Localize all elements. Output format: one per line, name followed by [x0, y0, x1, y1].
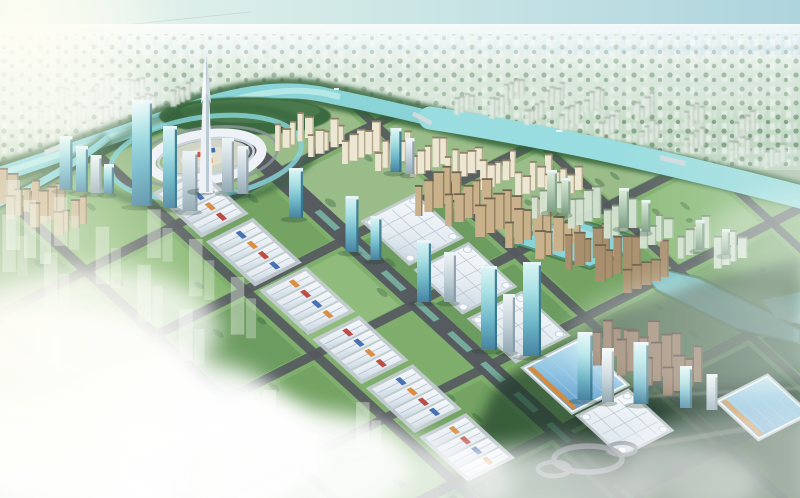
apartment-slab-side: [372, 132, 373, 154]
apartment-slab-side: [323, 131, 324, 154]
tower-roof-cap: [406, 138, 415, 140]
apartment-roof: [555, 88, 562, 90]
apartment-roof: [612, 204, 620, 206]
apartment-slab-side: [475, 152, 476, 174]
apartment-slab-side: [579, 103, 580, 124]
apartment-roof: [595, 244, 606, 246]
tower-shaded-side: [301, 172, 303, 219]
apartment-roof: [584, 100, 590, 102]
apartment-roof: [297, 112, 304, 114]
apartment-roof: [739, 117, 746, 119]
apartment-slab-side: [295, 123, 296, 145]
apartment-slab-side: [548, 91, 549, 106]
masterplan-illustration: Bird's-eye architectural rendering of a …: [0, 0, 800, 498]
apartment-roof: [290, 121, 297, 123]
apartment-slab-side: [466, 154, 467, 177]
apartment-slab-side: [498, 100, 499, 117]
apartment-roof: [564, 107, 569, 109]
apartment-slab-side: [337, 119, 338, 147]
apartment-slab-side: [535, 163, 536, 191]
apartment-roof: [405, 130, 412, 132]
apartment-roof: [745, 115, 752, 117]
apartment-roof: [505, 222, 514, 224]
tower-roof-cap: [547, 170, 557, 172]
tower-shaded-side: [539, 266, 541, 357]
apartment-roof: [750, 110, 756, 112]
apartment-roof: [415, 185, 423, 187]
apartment-slab-side: [603, 91, 604, 106]
apartment-roof: [504, 84, 509, 86]
apartment-slab-side: [439, 138, 440, 167]
apartment-slab-side: [551, 233, 552, 255]
tower-shaded-side: [495, 270, 497, 351]
office-tower: [481, 268, 497, 350]
apartment-roof: [639, 131, 645, 133]
apartment-roof: [475, 205, 487, 207]
apartment-slab-side: [485, 206, 486, 237]
tower-roof-cap: [444, 252, 456, 254]
apartment-roof: [417, 150, 425, 152]
apartment-roof: [460, 152, 468, 154]
apartment-roof: [549, 86, 555, 88]
apartment-slab-side: [563, 218, 564, 251]
apartment-roof: [689, 104, 694, 106]
apartment-roof: [544, 90, 550, 92]
apartment-slab-side: [523, 210, 524, 244]
apartment-slab-side: [530, 177, 531, 194]
apartment-roof: [567, 174, 575, 176]
apartment-slab-side: [593, 93, 594, 111]
apartment-roof: [740, 136, 747, 138]
apartment-slab-side: [443, 173, 444, 208]
apartment-roof: [489, 97, 496, 99]
apartment-slab-side: [754, 112, 755, 130]
apartment-slab-side: [494, 199, 495, 233]
apartment-slab-side: [290, 130, 291, 148]
apartment-roof: [470, 95, 475, 97]
apartment-slab-side: [509, 161, 510, 180]
tower-shaded-side: [555, 174, 557, 213]
apartment-roof: [604, 209, 613, 211]
office-tower: [523, 264, 541, 356]
apartment-roof: [445, 194, 453, 196]
apartment-roof: [473, 180, 481, 182]
apartment-roof: [769, 148, 774, 150]
apartment-slab-side: [432, 181, 433, 212]
tower-shaded-side: [454, 256, 456, 303]
apartment-slab-side: [531, 211, 532, 240]
apartment-roof: [509, 82, 514, 84]
apartment-roof: [452, 171, 462, 173]
apartment-slab-side: [703, 129, 704, 146]
apartment-slab-side: [380, 122, 381, 151]
apartment-roof: [655, 122, 660, 124]
apartment-roof: [729, 141, 735, 143]
apartment-roof: [432, 137, 440, 139]
apartment-slab-side: [582, 167, 583, 190]
apartment-roof: [530, 161, 537, 163]
apartment-slab-side: [653, 94, 654, 114]
apartment-roof: [342, 140, 350, 142]
apartment-roof: [424, 179, 434, 181]
apartment-roof: [308, 134, 315, 136]
apartment-slab-side: [348, 142, 349, 164]
tower-roof-cap: [346, 196, 359, 198]
tower-shaded-side: [246, 150, 248, 195]
apartment-roof: [440, 137, 448, 139]
apartment-slab-side: [650, 98, 651, 116]
apartment-slab-side: [175, 91, 176, 106]
apartment-slab-side: [512, 223, 513, 248]
apartment-slab-side: [364, 131, 365, 158]
apartment-roof: [780, 143, 787, 145]
apartment-roof: [522, 175, 531, 177]
apartment-roof: [484, 198, 496, 200]
apartment-slab-side: [523, 81, 524, 95]
apartment-roof: [689, 132, 694, 134]
apartment-slab-side: [495, 165, 496, 187]
apartment-roof: [454, 97, 460, 99]
apartment-roof: [480, 159, 488, 161]
apartment-slab-side: [507, 86, 508, 102]
apartment-slab-side: [313, 136, 314, 157]
apartment-slab: [595, 246, 606, 282]
apartment-slab-side: [643, 132, 644, 144]
apartment-slab-side: [584, 234, 585, 266]
tower-shaded-side: [232, 142, 234, 193]
apartment-slab-side: [421, 187, 422, 216]
apartment-roof: [503, 189, 512, 191]
apartment-roof: [514, 208, 524, 210]
apartment-roof: [475, 147, 484, 149]
apartment-slab-side: [494, 99, 495, 119]
apartment-slab-side: [588, 101, 589, 112]
apartment-roof: [700, 127, 705, 129]
tower-roof-cap: [481, 266, 497, 268]
apartment-roof: [684, 138, 689, 140]
apartment-roof: [584, 189, 594, 191]
apartment-roof: [372, 120, 382, 122]
apartment-slab-side: [619, 112, 620, 130]
apartment-slab: [464, 187, 474, 218]
apartment-roof: [545, 153, 553, 155]
apartment-slab-side: [688, 113, 689, 129]
apartment-slab-side: [574, 107, 575, 126]
apartment-roof: [589, 91, 595, 93]
apartment-roof: [315, 129, 325, 131]
apartment-slab-side: [472, 187, 473, 218]
apartment-slab-side: [554, 88, 555, 104]
tower-roof-cap: [417, 240, 431, 242]
apartment-roof: [495, 161, 502, 163]
apartment-roof: [593, 227, 604, 229]
apartment-roof: [592, 186, 602, 188]
apartment-roof: [500, 95, 506, 97]
apartment-slab-side: [603, 124, 604, 137]
apartment-roof: [524, 109, 531, 111]
tower-shaded-side: [356, 200, 358, 253]
apartment-slab-side: [458, 99, 459, 115]
apartment-roof: [532, 196, 539, 198]
apartment-slab-side: [381, 154, 382, 171]
apartment-slab-side: [592, 191, 593, 222]
apartment-slab-side: [463, 98, 464, 113]
tower-shaded-side: [568, 182, 570, 215]
apartment-roof: [443, 166, 452, 168]
apartment-slab-side: [503, 194, 504, 229]
apartment-roof: [515, 79, 521, 81]
apartment-roof: [433, 171, 444, 173]
apartment-roof: [520, 79, 525, 81]
apartment-roof: [502, 159, 511, 161]
tower-shaded-side: [399, 132, 401, 173]
apartment-slab-side: [510, 191, 511, 225]
apartment-roof: [595, 87, 602, 89]
apartment-slab-side: [184, 89, 185, 102]
apartment-slab-side: [590, 240, 591, 262]
apartment-roof: [576, 198, 585, 200]
ghost-building: [246, 298, 256, 338]
apartment-roof: [734, 122, 739, 124]
apartment-slab-side: [560, 89, 561, 102]
apartment-slab: [475, 206, 486, 237]
apartment-slab-side: [698, 132, 699, 149]
tower-roof-cap: [523, 262, 541, 264]
apartment-roof: [382, 140, 389, 142]
apartment-slab-side: [583, 199, 584, 225]
apartment-roof: [560, 82, 565, 84]
apartment-slab-side: [605, 246, 606, 282]
apartment-slab-side: [575, 200, 576, 229]
apartment-slab-side: [537, 197, 538, 218]
apartment-slab-side: [612, 251, 613, 278]
apartment-roof: [357, 129, 366, 131]
apartment-roof: [482, 178, 493, 180]
apartment-roof: [515, 172, 523, 174]
apartment-slab: [574, 234, 585, 266]
tower-roof-cap: [391, 128, 402, 130]
apartment-slab: [554, 218, 565, 251]
apartment-slab-side: [600, 187, 601, 218]
apartment-roof: [175, 86, 180, 88]
tower-shaded-side: [412, 142, 414, 175]
apartment-roof: [574, 232, 586, 234]
apartment-slab-side: [698, 104, 699, 124]
apartment-roof: [695, 130, 700, 132]
apartment-roof: [695, 103, 700, 105]
apartment-roof: [375, 152, 383, 154]
apartment-slab-side: [538, 105, 539, 120]
apartment-roof: [452, 149, 459, 151]
apartment-slab-side: [568, 109, 569, 129]
apartment-slab-side: [610, 210, 611, 238]
tower-roof-cap: [371, 216, 382, 218]
apartment-slab-side: [424, 151, 425, 173]
apartment-roof: [575, 166, 584, 168]
apartment-roof: [645, 96, 652, 98]
apartment-slab-side: [468, 95, 469, 110]
apartment-slab-side: [328, 132, 329, 150]
tower-roof-cap: [289, 168, 303, 170]
apartment-roof: [510, 150, 517, 152]
apartment-roof: [734, 141, 739, 143]
apartment-slab-side: [563, 116, 564, 131]
apartment-slab-side: [464, 195, 465, 222]
apartment-roof: [537, 166, 546, 168]
apartment-slab-side: [357, 135, 358, 161]
apartment-slab-side: [302, 114, 303, 141]
apartment-slab: [535, 232, 546, 259]
apartment-slab-side: [693, 106, 694, 126]
apartment-slab-side: [574, 175, 575, 193]
tower-shaded-side: [379, 220, 381, 261]
apartment-slab-side: [600, 89, 601, 108]
apartment-slab-side: [563, 84, 564, 100]
apartment-roof: [575, 102, 581, 104]
apartment-roof: [487, 164, 496, 166]
apartment-slab-side: [609, 119, 610, 135]
apartment-roof: [512, 195, 523, 197]
apartment-roof: [535, 230, 546, 232]
apartment-roof: [186, 82, 191, 84]
apartment-roof: [467, 150, 476, 152]
apartment-roof: [615, 110, 621, 112]
aerial-city-rendering: Bird's-eye architectural rendering of a …: [0, 0, 800, 498]
apartment-slab-side: [513, 84, 514, 100]
apartment-slab-side: [571, 236, 572, 270]
apartment-slab-side: [648, 127, 649, 142]
apartment-slab: [434, 173, 445, 208]
apartment-roof: [634, 102, 641, 104]
apartment-slab-side: [529, 111, 530, 125]
apartment-roof: [493, 193, 505, 195]
tower-roof-cap: [562, 178, 571, 180]
apartment-slab: [454, 195, 465, 222]
apartment-slab: [514, 210, 524, 244]
apartment-slab-side: [189, 84, 190, 100]
apartment-roof: [282, 128, 291, 130]
apartment-slab-side: [473, 97, 474, 108]
apartment-roof: [305, 116, 315, 118]
tower-roof-cap: [222, 138, 234, 140]
apartment-slab-side: [518, 80, 519, 97]
apartment-roof: [349, 133, 359, 135]
tower-shaded-side: [429, 244, 431, 303]
apartment-roof: [463, 185, 474, 187]
apartment-roof: [275, 124, 281, 126]
apartment-roof: [610, 115, 616, 117]
apartment-slab-side: [744, 119, 745, 135]
apartment-slab-side: [654, 121, 655, 140]
apartment-slab-side: [643, 108, 644, 119]
apartment-slab-side: [639, 103, 640, 120]
tower-roof-cap: [163, 126, 177, 128]
apartment-roof: [181, 88, 186, 90]
apartment-roof: [700, 106, 705, 108]
apartment-slab-side: [543, 102, 544, 118]
apartment-slab-side: [430, 147, 431, 171]
apartment-slab-side: [693, 134, 694, 150]
apartment-slab-side: [452, 195, 453, 226]
apartment-slab-side: [521, 173, 522, 197]
apartment-slab-side: [280, 125, 281, 151]
apartment-roof: [604, 117, 610, 119]
ghost-building: [231, 277, 244, 334]
apartment-roof: [540, 101, 545, 103]
apartment-roof: [650, 120, 656, 122]
tower-roof-cap: [238, 146, 249, 148]
apartment-roof: [465, 93, 471, 95]
apartment-roof: [684, 111, 689, 113]
apartment-roof: [644, 126, 649, 128]
apartment-roof: [523, 209, 532, 211]
apartment-roof: [599, 122, 604, 124]
apartment-slab-side: [614, 116, 615, 132]
boat: [334, 88, 339, 90]
apartment-roof: [560, 168, 567, 170]
apartment-roof: [425, 145, 432, 147]
apartment-roof: [459, 96, 465, 98]
apartment-slab-side: [658, 124, 659, 138]
apartment-slab-side: [388, 142, 389, 168]
apartment-slab-side: [703, 108, 704, 122]
apartment-roof: [330, 118, 339, 120]
apartment-slab-side: [500, 163, 501, 184]
apartment-roof: [445, 156, 452, 158]
apartment-slab-side: [416, 157, 417, 177]
apartment-roof: [454, 193, 465, 195]
apartment-roof: [170, 90, 176, 92]
apartment-slab-side: [533, 111, 534, 123]
tower-roof-cap: [503, 294, 515, 296]
apartment-slab-side: [738, 124, 739, 137]
apartment-roof: [338, 125, 345, 127]
tower-roof-cap: [183, 151, 198, 153]
apartment-roof: [570, 105, 576, 107]
apartment-roof: [559, 114, 565, 116]
apartment-slab-side: [179, 88, 180, 104]
apartment-slab-side: [749, 116, 750, 132]
tower-shaded-side: [513, 298, 515, 353]
apartment-roof: [565, 234, 573, 236]
apartment-slab-side: [544, 232, 545, 259]
apartment-roof: [650, 92, 655, 94]
apartment-roof: [535, 103, 540, 105]
